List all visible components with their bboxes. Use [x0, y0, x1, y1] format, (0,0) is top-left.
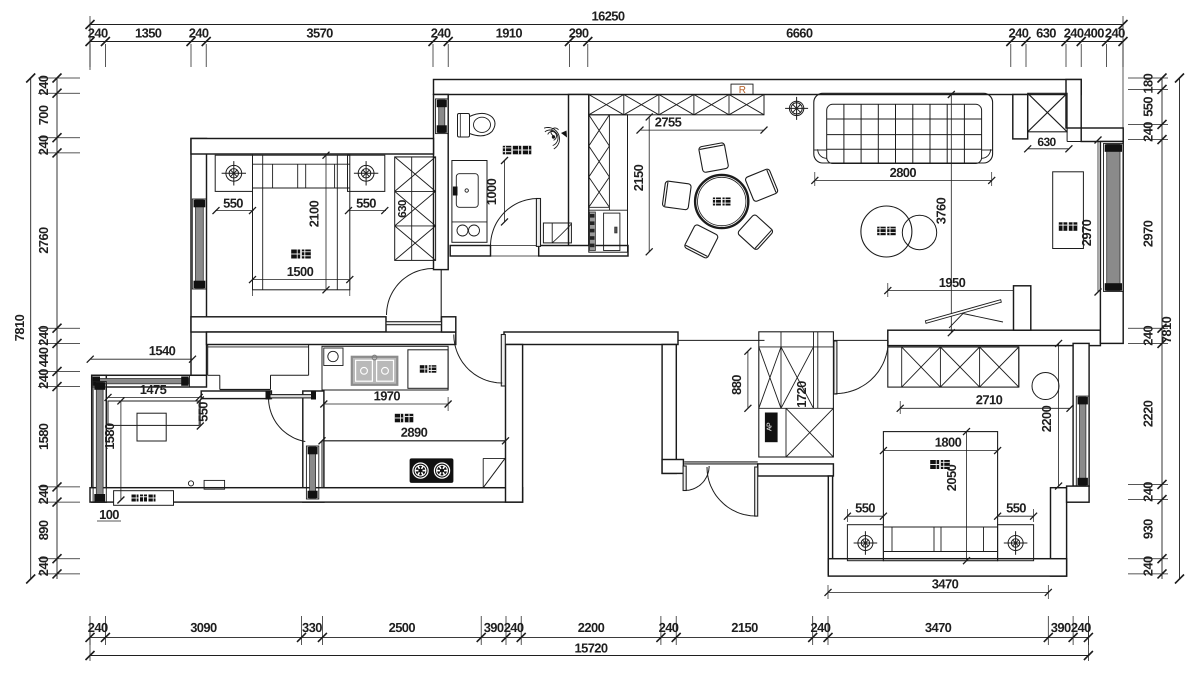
svg-text:240: 240 — [1141, 326, 1156, 346]
svg-text:240: 240 — [1141, 482, 1156, 502]
svg-text:400: 400 — [1084, 25, 1104, 40]
svg-text:R: R — [739, 85, 746, 96]
svg-text:2970: 2970 — [1079, 219, 1094, 246]
svg-text:240: 240 — [189, 25, 209, 40]
svg-text:1720: 1720 — [794, 381, 809, 408]
svg-text:240: 240 — [1141, 556, 1156, 576]
svg-text:2220: 2220 — [1141, 400, 1156, 427]
svg-text:3470: 3470 — [932, 576, 959, 591]
svg-text:AP: AP — [767, 422, 774, 431]
svg-text:240: 240 — [36, 135, 51, 155]
svg-text:240: 240 — [504, 620, 524, 635]
svg-text:880: 880 — [729, 375, 744, 395]
svg-text:1000: 1000 — [484, 178, 499, 205]
svg-text:6660: 6660 — [786, 25, 813, 40]
svg-text:7810: 7810 — [12, 314, 27, 341]
svg-text:930: 930 — [1141, 519, 1156, 539]
svg-text:240: 240 — [36, 484, 51, 504]
svg-text:630: 630 — [397, 200, 409, 218]
svg-text:240: 240 — [1105, 25, 1125, 40]
svg-text:240: 240 — [659, 620, 679, 635]
svg-text:240: 240 — [1008, 25, 1028, 40]
svg-text:700: 700 — [36, 105, 51, 125]
svg-text:550: 550 — [855, 500, 875, 515]
svg-text:2150: 2150 — [631, 164, 646, 191]
svg-text:2800: 2800 — [890, 165, 917, 180]
svg-text:550: 550 — [356, 196, 376, 211]
svg-text:890: 890 — [36, 520, 51, 540]
svg-text:16250: 16250 — [591, 8, 624, 23]
svg-text:2970: 2970 — [1141, 220, 1156, 247]
svg-text:240: 240 — [88, 25, 108, 40]
svg-text:100: 100 — [99, 507, 119, 522]
svg-text:1540: 1540 — [149, 343, 176, 358]
svg-text:390: 390 — [1051, 620, 1071, 635]
svg-text:2100: 2100 — [307, 200, 322, 227]
svg-text:3760: 3760 — [934, 197, 949, 224]
svg-text:1970: 1970 — [374, 388, 401, 403]
svg-text:330: 330 — [302, 620, 322, 635]
svg-text:440: 440 — [36, 347, 51, 367]
svg-text:2200: 2200 — [578, 620, 605, 635]
svg-text:1580: 1580 — [102, 423, 117, 450]
svg-text:2500: 2500 — [389, 620, 416, 635]
svg-text:240: 240 — [36, 556, 51, 576]
svg-text:240: 240 — [1064, 25, 1084, 40]
svg-text:1580: 1580 — [36, 423, 51, 450]
svg-text:1950: 1950 — [939, 275, 966, 290]
svg-text:2200: 2200 — [1039, 405, 1054, 432]
svg-text:240: 240 — [88, 620, 108, 635]
svg-text:1350: 1350 — [135, 25, 162, 40]
svg-text:3570: 3570 — [306, 25, 333, 40]
svg-text:7810: 7810 — [1159, 316, 1174, 343]
svg-text:3090: 3090 — [190, 620, 217, 635]
svg-text:390: 390 — [484, 620, 504, 635]
svg-text:2760: 2760 — [36, 227, 51, 254]
svg-text:240: 240 — [431, 25, 451, 40]
svg-text:1500: 1500 — [287, 264, 314, 279]
svg-text:550: 550 — [196, 402, 211, 422]
svg-text:240: 240 — [36, 326, 51, 346]
svg-text:240: 240 — [1141, 122, 1156, 142]
svg-text:1910: 1910 — [496, 25, 523, 40]
svg-text:630: 630 — [1037, 135, 1056, 149]
svg-text:180: 180 — [1141, 73, 1156, 93]
svg-text:2755: 2755 — [655, 114, 682, 129]
svg-text:550: 550 — [223, 196, 243, 211]
svg-text:15720: 15720 — [574, 640, 607, 655]
svg-text:240: 240 — [36, 369, 51, 389]
svg-text:2150: 2150 — [731, 620, 758, 635]
svg-text:2710: 2710 — [976, 392, 1003, 407]
svg-text:290: 290 — [569, 25, 589, 40]
svg-text:550: 550 — [1141, 97, 1156, 117]
svg-text:1475: 1475 — [140, 382, 167, 397]
svg-text:1800: 1800 — [935, 435, 962, 450]
svg-text:240: 240 — [810, 620, 830, 635]
svg-text:240: 240 — [36, 75, 51, 95]
svg-text:2890: 2890 — [401, 425, 428, 440]
svg-text:550: 550 — [1006, 500, 1026, 515]
svg-text:630: 630 — [1036, 25, 1056, 40]
svg-text:3470: 3470 — [925, 620, 952, 635]
